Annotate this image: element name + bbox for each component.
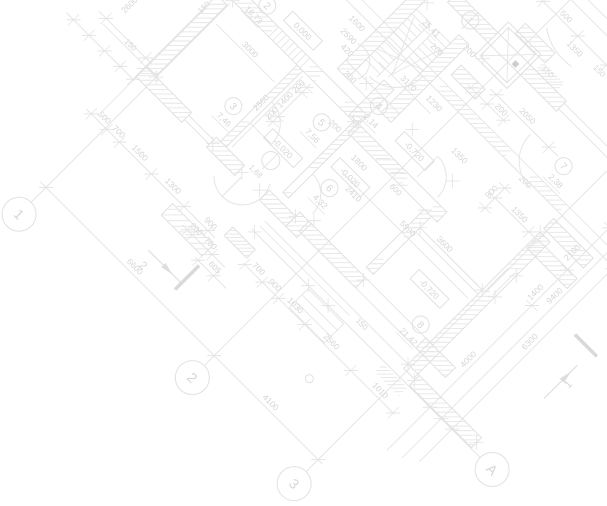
svg-text:1,68: 1,68 — [247, 163, 265, 181]
svg-text:9400: 9400 — [544, 285, 565, 306]
svg-text:1030: 1030 — [285, 295, 306, 316]
svg-text:2560: 2560 — [321, 331, 342, 352]
svg-text:8: 8 — [414, 319, 426, 331]
svg-text:4,32: 4,32 — [311, 192, 330, 211]
svg-text:1: 1 — [562, 378, 575, 391]
svg-text:700: 700 — [110, 123, 127, 140]
svg-text:7,46: 7,46 — [215, 110, 234, 129]
svg-text:700: 700 — [250, 260, 267, 277]
svg-text:150: 150 — [354, 316, 370, 332]
svg-text:6300: 6300 — [519, 331, 540, 352]
svg-text:1350: 1350 — [509, 204, 530, 225]
svg-text:3120: 3120 — [398, 73, 419, 94]
svg-text:4000: 4000 — [458, 349, 479, 370]
svg-text:2050: 2050 — [517, 106, 538, 127]
svg-text:600: 600 — [388, 182, 404, 198]
svg-text:2600: 2600 — [119, 0, 140, 15]
svg-text:1350: 1350 — [565, 39, 586, 60]
svg-text:1: 1 — [11, 206, 28, 223]
svg-text:605: 605 — [206, 259, 223, 276]
svg-text:5: 5 — [315, 117, 327, 129]
svg-text:5990: 5990 — [398, 218, 419, 239]
svg-text:3000: 3000 — [240, 39, 261, 60]
svg-text:150: 150 — [540, 64, 556, 80]
svg-text:1300: 1300 — [163, 176, 184, 197]
svg-text:3: 3 — [286, 475, 303, 492]
svg-text:150: 150 — [591, 63, 607, 79]
svg-text:25,41: 25,41 — [420, 17, 442, 39]
svg-text:900: 900 — [267, 276, 284, 293]
svg-text:2: 2 — [184, 369, 201, 386]
svg-text:150: 150 — [123, 37, 139, 53]
svg-text:1500: 1500 — [130, 143, 151, 164]
svg-text:4100: 4100 — [261, 392, 282, 413]
svg-text:3600: 3600 — [435, 234, 456, 255]
svg-text:A: A — [483, 461, 501, 479]
svg-text:6: 6 — [323, 183, 335, 195]
svg-text:7,56: 7,56 — [303, 126, 322, 145]
svg-text:500: 500 — [96, 109, 113, 126]
svg-text:7: 7 — [557, 161, 569, 173]
svg-text:1350: 1350 — [449, 145, 470, 166]
svg-text:1400: 1400 — [525, 282, 546, 303]
svg-text:3: 3 — [227, 101, 239, 113]
svg-text:500: 500 — [558, 9, 574, 25]
svg-text:200: 200 — [428, 41, 445, 58]
